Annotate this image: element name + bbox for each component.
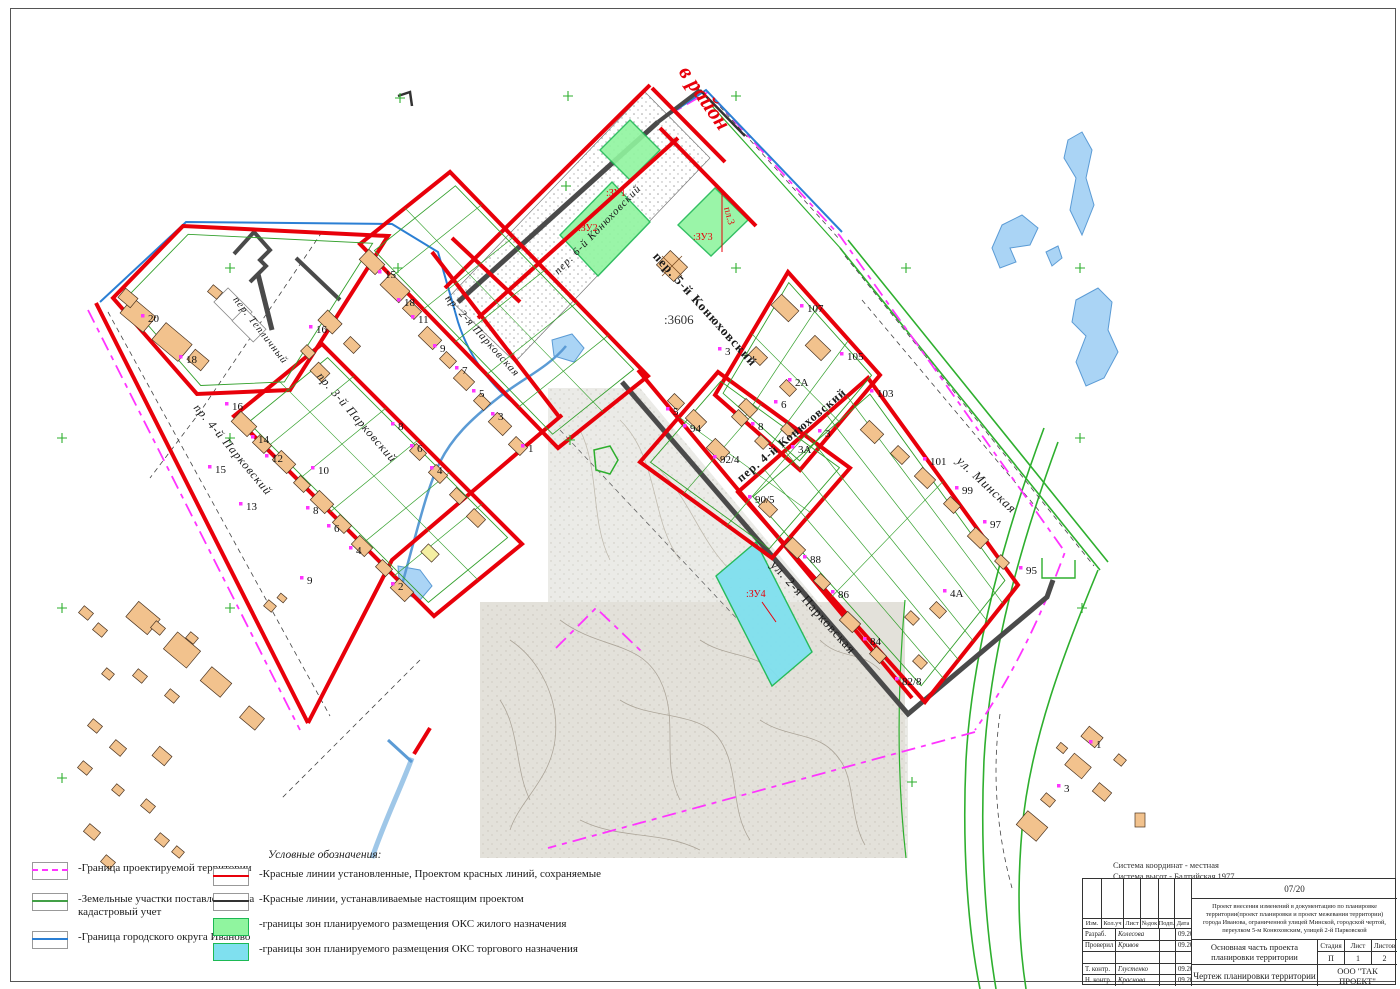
house-number: 12 (272, 453, 283, 465)
house-number: 9 (307, 575, 313, 587)
house-dot (391, 422, 395, 426)
house-dot (472, 389, 476, 393)
house-dot (265, 454, 269, 458)
stamp-role: Разраб. (1083, 928, 1115, 940)
sheets-label: Листов (1371, 939, 1397, 951)
house-dot (311, 466, 315, 470)
house-number: 94 (690, 423, 702, 435)
stage-value: П (1317, 951, 1344, 964)
house-number: 3 (498, 411, 504, 423)
stamp-date (1175, 951, 1191, 963)
house-dot (895, 677, 899, 681)
house-dot (397, 298, 401, 302)
stamp-role: Н. контр. (1083, 974, 1115, 986)
house-dot (788, 378, 792, 382)
house-dot (391, 582, 395, 586)
house-dot (943, 589, 947, 593)
plan-map: пер. Тепличныйпр. 4-й Парковскийпр. 3-й … (0, 0, 1400, 989)
house-dot (818, 429, 822, 433)
house-number: 3 (825, 428, 831, 440)
stamp-role: Т. контр. (1083, 963, 1115, 975)
stamp-name: Краснова (1115, 974, 1159, 986)
project-description: Проект внесения изменений в документацию… (1191, 898, 1397, 939)
legend-swatch (32, 931, 68, 949)
zone-label: :ЗУ3 (693, 232, 713, 243)
house-number: 99 (962, 485, 974, 497)
stamp-sign (1159, 974, 1175, 986)
stamp-date: 09.2020 (1175, 974, 1191, 986)
stamp-header: Дата (1174, 918, 1191, 928)
stamp-role: Проверил (1083, 940, 1115, 952)
house-dot (433, 344, 437, 348)
house-number: 82/8 (902, 676, 922, 688)
house-dot (411, 315, 415, 319)
stamp-header: №док (1140, 918, 1158, 928)
stage-label: Стадия (1317, 939, 1344, 951)
house-dot (521, 444, 525, 448)
house-dot (455, 366, 459, 370)
legend-column-2: -Красные линии установленные, Проектом к… (213, 868, 618, 961)
stamp-sign (1159, 951, 1175, 963)
legend-item: -Красные линии установленные, Проектом к… (213, 868, 618, 886)
house-number: 8 (313, 505, 319, 517)
stamp-sign (1159, 940, 1175, 952)
house-number: 92/4 (720, 454, 740, 466)
house-number: 6 (334, 523, 340, 535)
company: ООО "ТАК ПРОЕКТ" (1317, 964, 1397, 986)
house-dot (863, 637, 867, 641)
stamp-name: Глустенко (1115, 963, 1159, 975)
stamp-date: 09.2020 (1175, 940, 1191, 952)
house-dot (1057, 784, 1061, 788)
sheets-value: 2 (1371, 951, 1397, 964)
stamp-sign (1159, 963, 1175, 975)
house-dot (923, 457, 927, 461)
house-dot (713, 455, 717, 459)
house-number: 95 (1026, 565, 1038, 577)
house-number: 6 (417, 443, 423, 455)
sheet-value: 1 (1344, 951, 1371, 964)
house-number: 88 (810, 554, 822, 566)
legend-label: -Красные линии, устанавливаемые настоящи… (259, 893, 524, 906)
stamp-sign (1159, 928, 1175, 940)
house-dot (683, 424, 687, 428)
house-dot (791, 445, 795, 449)
stamp-name: Кривов (1115, 940, 1159, 952)
house-number: 1 (1096, 739, 1102, 751)
house-number: 5 (673, 406, 679, 418)
house-dot (774, 400, 778, 404)
house-number: 9 (440, 343, 446, 355)
house-number: 16 (316, 324, 328, 336)
house-number: 97 (990, 519, 1002, 531)
legend-label: -границы зон планируемого размещения ОКС… (259, 918, 566, 931)
house-number: 3А (798, 444, 812, 456)
house-number: 103 (877, 388, 894, 400)
house-dot (803, 555, 807, 559)
stamp-header: Подп. (1158, 918, 1174, 928)
coord-system-note-1: Система координат - местная (1113, 860, 1219, 870)
legend-swatch (32, 862, 68, 880)
stamp-date: 09.2020 (1175, 963, 1191, 975)
house-number: 10 (318, 465, 330, 477)
house-dot (840, 352, 844, 356)
house-dot (955, 486, 959, 490)
house-number: 8 (758, 421, 764, 433)
house-number: 4 (437, 465, 443, 477)
stamp-name (1115, 951, 1159, 963)
house-number: 107 (807, 303, 824, 315)
house-number: 8 (398, 421, 404, 433)
house-dot (306, 506, 310, 510)
house-number: 18 (186, 354, 198, 366)
sheet-title: Чертеж планировки территории (1191, 964, 1317, 986)
house-number: 13 (246, 501, 258, 513)
legend-item: -границы зон планируемого размещения ОКС… (213, 918, 618, 936)
house-dot (870, 389, 874, 393)
title-block: 07/20 Проект внесения изменений в докуме… (1082, 878, 1396, 985)
house-number: 2А (795, 377, 809, 389)
section-title: Основная часть проекта планировки террит… (1191, 939, 1317, 964)
house-dot (751, 422, 755, 426)
legend-item: -границы зон планируемого размещения ОКС… (213, 943, 618, 961)
house-number: 11 (418, 314, 429, 326)
legend-label: -Красные линии установленные, Проектом к… (259, 868, 601, 881)
house-dot (141, 314, 145, 318)
house-dot (491, 412, 495, 416)
house-number: 4 (356, 545, 362, 557)
street-label: пер. Тепличный (230, 295, 289, 367)
house-number: 1 (528, 443, 534, 455)
house-dot (239, 502, 243, 506)
house-dot (748, 495, 752, 499)
house-dot (309, 325, 313, 329)
house-dot (208, 465, 212, 469)
house-dot (179, 355, 183, 359)
stamp-role (1083, 951, 1115, 963)
direction-note: в район (674, 61, 736, 135)
house-number: 3 (1064, 783, 1070, 795)
house-dot (1089, 740, 1093, 744)
street-label: пер. 5-й Конюховский (650, 249, 760, 369)
house-number: 20 (148, 313, 160, 325)
house-number: 15 (385, 269, 397, 281)
house-number: 105 (847, 351, 864, 363)
house-dot (983, 520, 987, 524)
house-number: 14 (258, 434, 270, 446)
legend-swatch (213, 918, 249, 936)
legend-item: -Красные линии, устанавливаемые настоящи… (213, 893, 618, 911)
house-number: 5 (479, 388, 485, 400)
house-dot (410, 444, 414, 448)
zone-label: :ЗУ4 (746, 589, 766, 600)
house-number: 101 (930, 456, 947, 468)
house-dot (300, 576, 304, 580)
zone-label: :ЗУ2 (578, 223, 598, 234)
plan-sheet: пер. Тепличныйпр. 4-й Парковскийпр. 3-й … (0, 0, 1400, 989)
house-number: 2 (398, 581, 404, 593)
stamp-name: Колесова (1115, 928, 1159, 940)
legend-title: Условные обозначения: (268, 849, 382, 861)
sheet-label: Лист (1344, 939, 1371, 951)
doc-number: 07/20 (1191, 879, 1397, 898)
house-number: 16 (232, 401, 244, 413)
house-number: 84 (870, 636, 882, 648)
stamp-header: Изм. (1083, 918, 1101, 928)
house-dot (430, 466, 434, 470)
house-dot (349, 546, 353, 550)
stamp-header: Кол.уч (1101, 918, 1123, 928)
house-number: 18 (404, 297, 416, 309)
stamp-date: 09.2020 (1175, 928, 1191, 940)
house-number: 15 (215, 464, 227, 476)
house-number: 6 (781, 399, 787, 411)
house-dot (378, 270, 382, 274)
house-dot (718, 347, 722, 351)
cadastral-number: :3606 (664, 312, 694, 327)
house-dot (666, 407, 670, 411)
house-number: 3 (725, 346, 731, 358)
house-number: 86 (838, 589, 850, 601)
house-dot (800, 304, 804, 308)
house-number: 4А (950, 588, 964, 600)
legend-label: -границы зон планируемого размещения ОКС… (259, 943, 578, 956)
house-number: 7 (462, 365, 468, 377)
house-dot (225, 402, 229, 406)
house-dot (1019, 566, 1023, 570)
legend-swatch (213, 893, 249, 911)
legend-swatch (213, 943, 249, 961)
house-number: 90/5 (755, 494, 775, 506)
house-dot (327, 524, 331, 528)
stamp-header: Лист (1123, 918, 1140, 928)
zone-label: :ЗУ1 (606, 188, 626, 199)
legend-swatch (32, 893, 68, 911)
house-dot (831, 590, 835, 594)
legend-swatch (213, 868, 249, 886)
house-dot (251, 435, 255, 439)
